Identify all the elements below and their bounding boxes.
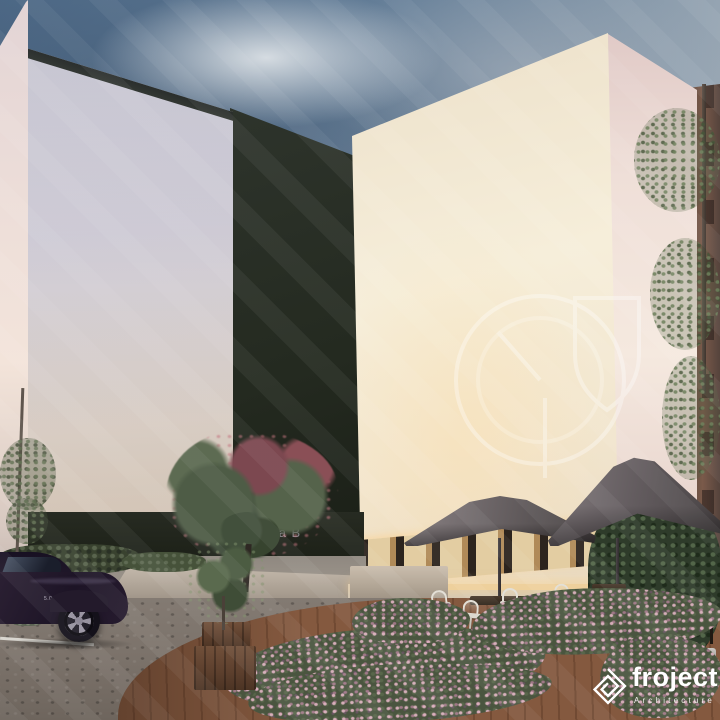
sports-car: 5.0 — [0, 550, 136, 652]
architectural-rendering: yrja B 5.0 — [0, 0, 720, 720]
birch-foliage — [662, 356, 720, 480]
sapling-foliage — [6, 498, 48, 544]
logo-subtitle: Architecture — [634, 696, 715, 705]
studio-logo: froject Architecture — [586, 662, 720, 716]
planter-tree-foliage — [184, 538, 268, 624]
wooden-planter-box — [194, 646, 256, 690]
watermark-emblem-icon — [448, 240, 668, 512]
froject-logo-icon — [588, 666, 628, 706]
car-hood-highlight — [30, 578, 116, 584]
logo-wordmark: froject — [632, 662, 718, 693]
planter-tree-trunk — [222, 596, 225, 630]
car-shadow — [0, 638, 134, 650]
car-wheel-arch — [50, 590, 108, 612]
birch-foliage — [634, 108, 720, 212]
wooden-planter-box — [202, 622, 250, 648]
